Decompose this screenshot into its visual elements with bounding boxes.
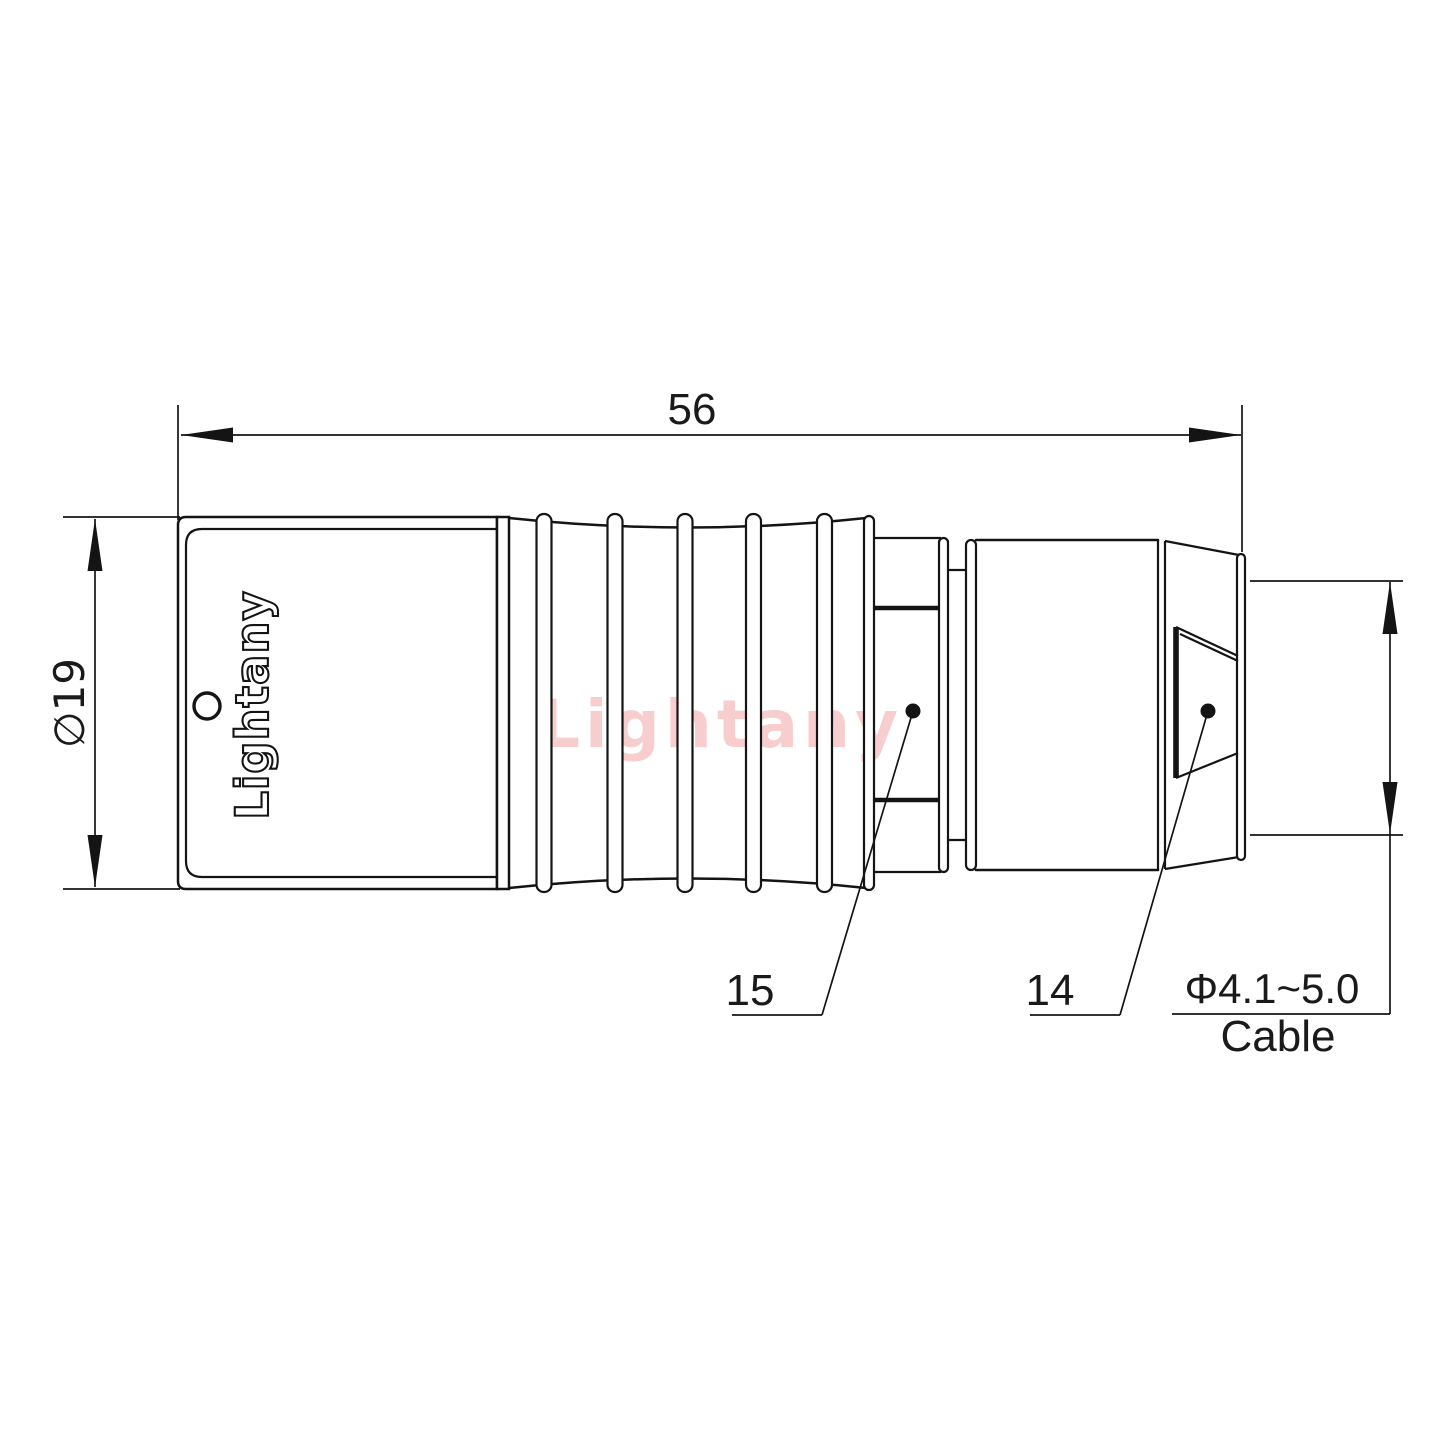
- boot-end-disc: [864, 516, 874, 890]
- cable-range-value: Φ4.1~5.0: [1185, 965, 1360, 1012]
- dimension-cable-range: Φ4.1~5.0 Cable: [1172, 581, 1403, 1061]
- nut-front-disc: [966, 540, 976, 870]
- grip-rib: [817, 514, 832, 892]
- arrow-right-icon: [1189, 428, 1241, 443]
- rear-nut: [966, 540, 1245, 870]
- window-bottom-edge: [1176, 753, 1238, 778]
- collar-end-disc: [939, 538, 948, 872]
- front-body: Lightany: [178, 517, 509, 889]
- dimension-body-diameter: ∅19: [45, 517, 180, 889]
- arrow-down-icon: [88, 835, 103, 887]
- chamfer-bottom: [1165, 857, 1239, 869]
- neck: [948, 570, 966, 840]
- cable-entry-tip: [1237, 554, 1245, 860]
- overall-length-value: 56: [668, 385, 717, 434]
- arrow-up-icon: [88, 519, 103, 571]
- cable-label: Cable: [1221, 1012, 1336, 1061]
- grip-rib: [678, 514, 693, 892]
- watermark-text: Lightany: [538, 686, 903, 763]
- chamfer-top: [1165, 541, 1239, 555]
- grip-rib: [608, 514, 623, 892]
- connector-technical-drawing: Lightany Lightany: [0, 0, 1440, 1440]
- drawing-canvas: Lightany Lightany: [0, 0, 1440, 1440]
- window-top-edge-outer: [1176, 627, 1238, 656]
- body-logo-text: Lightany: [226, 590, 279, 820]
- arrow-left-icon: [181, 428, 233, 443]
- arrow-down-icon: [1383, 782, 1398, 834]
- grip-rib: [746, 514, 761, 892]
- grip-rib: [537, 514, 552, 892]
- part-number: 15: [726, 966, 775, 1015]
- window-top-edge-inner: [1180, 634, 1238, 661]
- part-number: 14: [1026, 966, 1075, 1015]
- sleeve-band: [497, 517, 509, 889]
- body-hole: [194, 693, 220, 719]
- arrow-up-icon: [1383, 582, 1398, 634]
- body-diameter-value: ∅19: [45, 658, 94, 748]
